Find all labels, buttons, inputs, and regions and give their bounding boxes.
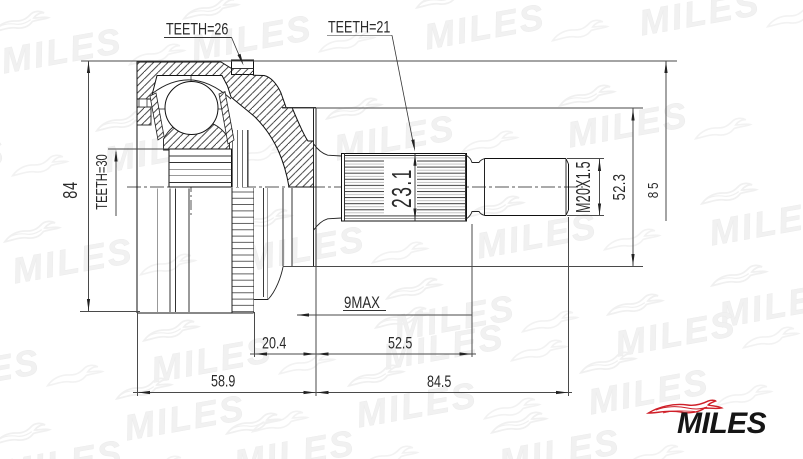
svg-text:9MAX: 9MAX [344, 294, 380, 313]
svg-text:20.4: 20.4 [262, 335, 286, 353]
svg-text:52.3: 52.3 [610, 174, 630, 201]
svg-text:TEETH=26: TEETH=26 [166, 21, 228, 39]
svg-text:58.9: 58.9 [211, 373, 235, 391]
svg-text:MILES: MILES [677, 407, 767, 440]
svg-text:85: 85 [645, 180, 662, 198]
svg-text:TEETH=30: TEETH=30 [93, 154, 110, 209]
svg-text:M20X1.5: M20X1.5 [572, 161, 595, 213]
svg-text:52.5: 52.5 [388, 335, 412, 353]
svg-text:23.1: 23.1 [386, 168, 417, 208]
svg-text:TEETH=21: TEETH=21 [328, 19, 390, 37]
svg-text:84.5: 84.5 [427, 373, 451, 391]
svg-text:84: 84 [59, 181, 82, 198]
